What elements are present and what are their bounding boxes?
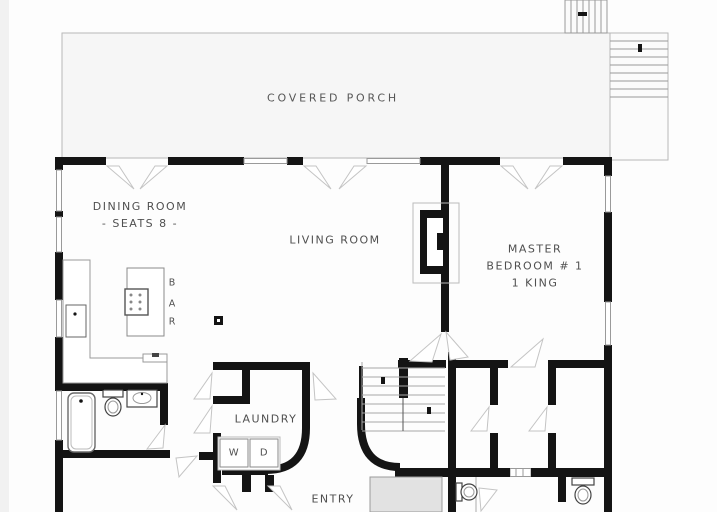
stair-arrow-icon <box>381 377 385 384</box>
floor-plan-page: COVERED PORCH DINING ROOM - SEATS 8 - LI… <box>0 0 717 512</box>
label-living-room: LIVING ROOM <box>289 234 380 247</box>
dining-room-note: - SEATS 8 - <box>93 215 187 232</box>
master-line1: MASTER <box>486 241 583 258</box>
master-line2: BEDROOM # 1 <box>486 258 583 275</box>
label-dining-room: DINING ROOM - SEATS 8 - <box>93 198 187 232</box>
stair-arrow-icon <box>427 407 431 414</box>
label-master-bedroom: MASTER BEDROOM # 1 1 KING <box>486 241 583 292</box>
washer-dryer <box>218 437 280 470</box>
label-bar-b: B <box>169 278 176 289</box>
label-covered-porch: COVERED PORCH <box>267 92 399 105</box>
label-laundry: LAUNDRY <box>235 413 298 426</box>
master-line3: 1 KING <box>486 275 583 292</box>
label-washer: W <box>229 448 239 459</box>
stair-arrow-icon <box>578 12 587 16</box>
label-bar-a: A <box>169 299 176 310</box>
dining-room-name: DINING ROOM <box>93 198 187 215</box>
kitchen-sink-icon <box>66 305 86 337</box>
stair-arrow-icon <box>638 44 642 52</box>
door-swing-icons <box>107 166 562 189</box>
toilet-icon <box>103 390 123 416</box>
cooktop-icon <box>125 289 148 315</box>
toilet-icon <box>572 478 594 504</box>
toilet-icon <box>456 483 477 501</box>
shower-pad-icon <box>370 477 442 512</box>
faucet-mark <box>99 384 104 390</box>
page-edge-shadow <box>0 0 9 512</box>
interior-door-swings <box>147 332 547 511</box>
label-dryer: D <box>260 448 268 459</box>
floor-outlet-icon <box>214 316 223 325</box>
label-entry: ENTRY <box>311 493 354 506</box>
floor-plan-drawing <box>0 0 717 512</box>
bathtub-icon <box>68 393 95 452</box>
faucet-mark <box>123 384 128 390</box>
label-bar-r: R <box>169 317 176 328</box>
fireplace-icon <box>413 203 459 283</box>
sink-icon <box>127 390 157 407</box>
